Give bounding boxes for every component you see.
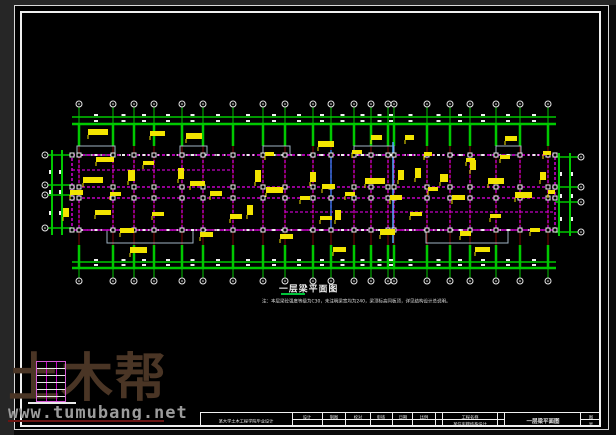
column-marker [494, 185, 498, 189]
beam-label [310, 172, 316, 182]
axis-bubble-top [547, 103, 549, 105]
beam-dim-tick [341, 154, 344, 156]
drawing-note: 注：本层梁砼强度等级为C30，未注明梁宽均为240，梁顶标高同板顶，详见结构设计… [262, 294, 616, 313]
beam-label [128, 170, 135, 181]
column-marker [70, 153, 74, 157]
dim-text-tick [122, 259, 126, 261]
beam-dim-tick [482, 154, 485, 156]
column-marker [494, 228, 498, 232]
beam-label [398, 170, 404, 180]
axis-bubble-top [262, 103, 264, 105]
column-marker [283, 196, 287, 200]
column-marker [231, 196, 235, 200]
dim-text-tick [378, 120, 382, 122]
dim-text-tick [532, 259, 536, 261]
dim-text-tick [272, 120, 276, 122]
beam-label [266, 187, 283, 193]
dim-text-tick [481, 114, 485, 116]
title-block-field-design: 设计 [293, 413, 323, 427]
dim-text-tick [191, 259, 195, 261]
column-marker [518, 153, 522, 157]
dim-text-tick [560, 194, 562, 198]
dim-text-tick [166, 264, 170, 266]
axis-bubble-bottom [133, 280, 135, 282]
beam-label [490, 214, 501, 218]
axis-bubble-top [387, 103, 389, 105]
dim-text-tick [191, 120, 195, 122]
column-marker [468, 153, 472, 157]
beam-label [410, 212, 422, 216]
dim-text-tick [481, 120, 485, 122]
axis-bubble-top [112, 103, 114, 105]
axis-bubble-bottom [78, 280, 80, 282]
title-block: 某大学土木工程学院毕业设计 设计 制图 校对 审核 日期 比例 工程名称 某住宅… [200, 412, 601, 427]
watermark-building-graphic [36, 361, 66, 402]
title-block-drawing-name: 一层梁平面图 [505, 413, 581, 427]
beam-dim-tick [217, 229, 220, 231]
dim-text-tick [122, 114, 126, 116]
beam-label [335, 210, 341, 220]
title-block-field-scale: 比例 [413, 413, 436, 427]
beam-dim-tick [533, 154, 536, 156]
dim-text-tick [378, 259, 382, 261]
dim-text-tick [272, 264, 276, 266]
column-marker [152, 228, 156, 232]
dim-text-tick [142, 264, 146, 266]
dim-text-tick [409, 114, 413, 116]
axis-bubble-top [393, 103, 395, 105]
beam-label [452, 195, 465, 200]
beam-label [152, 212, 164, 216]
beam-dim-tick [437, 154, 440, 156]
dim-text-tick [216, 120, 220, 122]
beam-label [320, 216, 332, 220]
dim-text-tick [532, 120, 536, 122]
beam-label [95, 210, 111, 215]
dim-text-tick [166, 114, 170, 116]
dim-text-tick [458, 259, 462, 261]
dim-text-tick [216, 264, 220, 266]
beam-label [190, 181, 205, 186]
beam-dim-tick [409, 229, 412, 231]
beam-label [505, 136, 517, 141]
dim-text-tick [378, 114, 382, 116]
dim-text-tick [94, 114, 98, 116]
beam-label [371, 135, 382, 140]
column-marker [261, 185, 265, 189]
axis-bubble-bottom [202, 280, 204, 282]
dim-text-tick [142, 120, 146, 122]
axis-bubble-top [202, 103, 204, 105]
column-marker [425, 196, 429, 200]
dim-text-tick [458, 114, 462, 116]
dim-text-tick [409, 259, 413, 261]
dim-text-tick [122, 120, 126, 122]
column-marker [352, 185, 356, 189]
beam-dim-tick [321, 229, 324, 231]
dim-text-tick [409, 120, 413, 122]
column-marker [261, 196, 265, 200]
beam-dim-tick [378, 154, 381, 156]
column-marker [448, 196, 452, 200]
column-marker [546, 185, 550, 189]
beam-dim-tick [507, 229, 510, 231]
beam-dim-tick [191, 229, 194, 231]
dim-text-tick [94, 259, 98, 261]
dim-text-tick [191, 114, 195, 116]
column-marker [70, 196, 74, 200]
axis-bubble-bottom [426, 280, 428, 282]
dim-text-tick [49, 170, 51, 174]
beam-dim-tick [273, 229, 276, 231]
column-marker [152, 153, 156, 157]
column-marker [392, 185, 396, 189]
axis-bubble-top [469, 103, 471, 105]
column-marker [180, 153, 184, 157]
axis-bubble-top [370, 103, 372, 105]
axis-bubble-bottom [393, 280, 395, 282]
title-block-spacer-1 [436, 413, 443, 427]
axis-bubble-top [181, 103, 183, 105]
dim-text-tick [272, 259, 276, 261]
column-marker [132, 185, 136, 189]
beam-dim-tick [122, 154, 125, 156]
beam-dim-tick [167, 154, 170, 156]
column-marker [468, 196, 472, 200]
column-marker [553, 153, 557, 157]
column-marker [180, 228, 184, 232]
column-marker [386, 153, 390, 157]
column-marker [77, 185, 81, 189]
column-marker [369, 196, 373, 200]
watermark-url-underline [8, 420, 164, 422]
axis-bubble-top [353, 103, 355, 105]
dim-text-tick [437, 264, 441, 266]
column-marker [546, 228, 550, 232]
column-marker [231, 185, 235, 189]
dim-text-tick [59, 170, 61, 174]
beam-dim-tick [95, 229, 98, 231]
column-marker [329, 196, 333, 200]
dim-text-tick [320, 114, 324, 116]
column-marker [518, 185, 522, 189]
dim-text-tick [361, 259, 365, 261]
beam-dim-tick [298, 154, 301, 156]
axis-bubble-left [44, 227, 46, 229]
beam-label [352, 150, 362, 154]
beam-label [322, 184, 335, 189]
beam-label [390, 195, 402, 200]
column-marker [180, 185, 184, 189]
beam-label [178, 168, 184, 179]
column-marker [201, 153, 205, 157]
dim-text-tick [216, 259, 220, 261]
beam-label [130, 247, 147, 253]
dim-text-tick [341, 120, 345, 122]
beam-label [83, 177, 103, 183]
dim-text-tick [532, 264, 536, 266]
column-marker [494, 196, 498, 200]
column-marker [111, 185, 115, 189]
dim-text-tick [506, 114, 510, 116]
column-marker [518, 228, 522, 232]
beam-label [265, 152, 274, 156]
beam-dim-tick [341, 229, 344, 231]
dim-text-tick [506, 264, 510, 266]
dim-text-tick [506, 120, 510, 122]
axis-bubble-bottom [153, 280, 155, 282]
beam-dim-tick [95, 154, 98, 156]
balcony-outline [77, 146, 115, 155]
title-block-field-check: 校对 [346, 413, 371, 427]
dim-text-tick [142, 114, 146, 116]
column-marker [311, 228, 315, 232]
axis-bubble-left [44, 184, 46, 186]
dim-text-tick [437, 120, 441, 122]
column-marker [152, 196, 156, 200]
beam-dim-tick [321, 154, 324, 156]
dim-text-tick [297, 259, 301, 261]
column-marker [111, 153, 115, 157]
dim-text-tick [361, 120, 365, 122]
dim-text-tick [49, 190, 51, 194]
axis-bubble-top [426, 103, 428, 105]
axis-bubble-bottom [449, 280, 451, 282]
axis-bubble-top [495, 103, 497, 105]
axis-bubble-top [284, 103, 286, 105]
dim-text-tick [560, 172, 562, 176]
column-marker [468, 185, 472, 189]
beam-dim-tick [459, 229, 462, 231]
dim-text-tick [341, 264, 345, 266]
column-marker [152, 185, 156, 189]
beam-dim-tick [191, 154, 194, 156]
column-marker [553, 196, 557, 200]
beam-label [540, 172, 546, 180]
column-marker [77, 196, 81, 200]
beam-label [63, 208, 69, 217]
dim-text-tick [297, 120, 301, 122]
dim-text-tick [389, 114, 393, 116]
beam-label [143, 161, 154, 165]
drawing-note-text: 注：本层梁砼强度等级为C30，未注明梁宽均为240，梁顶标高同板顶，详见结构设计… [262, 297, 450, 304]
axis-bubble-top [312, 103, 314, 105]
axis-bubble-top [232, 103, 234, 105]
column-marker [111, 228, 115, 232]
dim-text-tick [216, 114, 220, 116]
dim-text-tick [458, 264, 462, 266]
dim-text-tick [142, 259, 146, 261]
dim-text-tick [341, 114, 345, 116]
dim-text-tick [437, 259, 441, 261]
dim-text-tick [389, 120, 393, 122]
column-marker [369, 185, 373, 189]
beam-dim-tick [437, 229, 440, 231]
beam-dim-tick [217, 154, 220, 156]
axis-bubble-top [153, 103, 155, 105]
beam-label [120, 228, 134, 233]
column-marker [311, 185, 315, 189]
beam-dim-tick [482, 229, 485, 231]
axis-bubble-top [330, 103, 332, 105]
axis-bubble-bottom [262, 280, 264, 282]
axis-bubble-left [44, 154, 46, 156]
column-marker [311, 196, 315, 200]
axis-bubble-bottom [547, 280, 549, 282]
beam-label [428, 187, 438, 191]
dim-text-tick [389, 259, 393, 261]
column-marker [494, 153, 498, 157]
title-block-spacer-2 [498, 413, 505, 427]
beam-label [96, 157, 114, 162]
dim-text-tick [378, 264, 382, 266]
dim-text-tick [166, 259, 170, 261]
column-marker [261, 153, 265, 157]
axis-bubble-bottom [519, 280, 521, 282]
beam-dim-tick [459, 154, 462, 156]
dim-text-tick [571, 194, 573, 198]
dim-text-tick [506, 259, 510, 261]
beam-label [345, 192, 355, 196]
beam-label [460, 231, 471, 236]
beam-dim-tick [143, 154, 146, 156]
column-marker [111, 196, 115, 200]
axis-bubble-right [580, 231, 582, 233]
beam-label [500, 155, 510, 159]
dim-text-tick [49, 211, 51, 215]
beam-dim-tick [409, 154, 412, 156]
beam-label [405, 135, 414, 140]
axis-bubble-bottom [469, 280, 471, 282]
title-block-institution: 某大学土木工程学院毕业设计 [201, 413, 293, 427]
axis-bubble-left [44, 194, 46, 196]
beam-label [424, 152, 432, 156]
column-marker [201, 228, 205, 232]
column-marker [386, 196, 390, 200]
beam-label [200, 232, 213, 237]
dim-text-tick [297, 264, 301, 266]
beam-label [210, 191, 222, 196]
dim-text-tick [481, 259, 485, 261]
beam-label [548, 190, 555, 194]
beam-label [380, 229, 395, 235]
column-marker [448, 185, 452, 189]
column-marker [352, 196, 356, 200]
dim-text-tick [320, 259, 324, 261]
column-marker [283, 153, 287, 157]
column-marker [77, 153, 81, 157]
dim-text-tick [191, 264, 195, 266]
column-marker [70, 228, 74, 232]
dim-text-tick [246, 259, 250, 261]
beam-label [150, 131, 165, 136]
dim-text-tick [272, 114, 276, 116]
column-marker [352, 228, 356, 232]
beam-dim-tick [167, 229, 170, 231]
column-marker [231, 153, 235, 157]
column-marker [201, 196, 205, 200]
beam-label [255, 170, 261, 182]
beam-label [365, 178, 385, 184]
axis-bubble-right [580, 186, 582, 188]
column-marker [70, 185, 74, 189]
column-marker [392, 153, 396, 157]
dim-text-tick [571, 217, 573, 221]
dim-text-tick [166, 120, 170, 122]
beam-label [543, 151, 551, 155]
beam-label [440, 174, 448, 182]
column-marker [77, 228, 81, 232]
axis-bubble-right [580, 201, 582, 203]
axis-bubble-top [133, 103, 135, 105]
dim-text-tick [297, 114, 301, 116]
dim-text-tick [560, 217, 562, 221]
dim-text-tick [320, 264, 324, 266]
title-block-field-review: 审核 [371, 413, 393, 427]
beam-dim-tick [143, 229, 146, 231]
column-marker [425, 228, 429, 232]
dim-text-tick [122, 264, 126, 266]
column-marker [180, 196, 184, 200]
column-marker [329, 153, 333, 157]
title-block-field-date: 日期 [393, 413, 414, 427]
beam-label [230, 214, 242, 219]
axis-bubble-bottom [112, 280, 114, 282]
axis-bubble-bottom [387, 280, 389, 282]
beam-label [280, 234, 293, 239]
column-marker [231, 228, 235, 232]
dim-text-tick [458, 120, 462, 122]
beam-label [318, 141, 334, 147]
column-marker [283, 185, 287, 189]
balcony-outline [496, 146, 521, 155]
column-marker [553, 228, 557, 232]
beam-label [70, 190, 83, 195]
axis-bubble-bottom [495, 280, 497, 282]
dim-text-tick [320, 120, 324, 122]
column-marker [132, 196, 136, 200]
watermark-brand: 土木帮 [8, 336, 167, 411]
beam-dim-tick [247, 229, 250, 231]
beam-label [488, 178, 504, 184]
axis-bubble-top [519, 103, 521, 105]
axis-bubble-bottom [232, 280, 234, 282]
dim-text-tick [246, 120, 250, 122]
dim-text-tick [59, 211, 61, 215]
column-marker [261, 228, 265, 232]
column-marker [283, 228, 287, 232]
beam-dim-tick [298, 229, 301, 231]
dim-text-tick [341, 259, 345, 261]
dim-text-tick [361, 264, 365, 266]
beam-dim-tick [247, 154, 250, 156]
column-marker [369, 153, 373, 157]
beam-label [186, 133, 202, 139]
title-block-field-draft: 制图 [323, 413, 346, 427]
dim-text-tick [94, 120, 98, 122]
beam-dim-tick [390, 154, 393, 156]
beam-label [88, 129, 108, 135]
dim-text-tick [437, 114, 441, 116]
dim-text-tick [59, 190, 61, 194]
beam-dim-tick [361, 229, 364, 231]
column-marker [386, 185, 390, 189]
axis-bubble-bottom [181, 280, 183, 282]
title-block-sheet-no: 图 号 [581, 413, 601, 427]
dim-text-tick [246, 264, 250, 266]
title-block-project: 工程名称 某住宅楼结构设计 [443, 413, 498, 427]
column-marker [311, 153, 315, 157]
